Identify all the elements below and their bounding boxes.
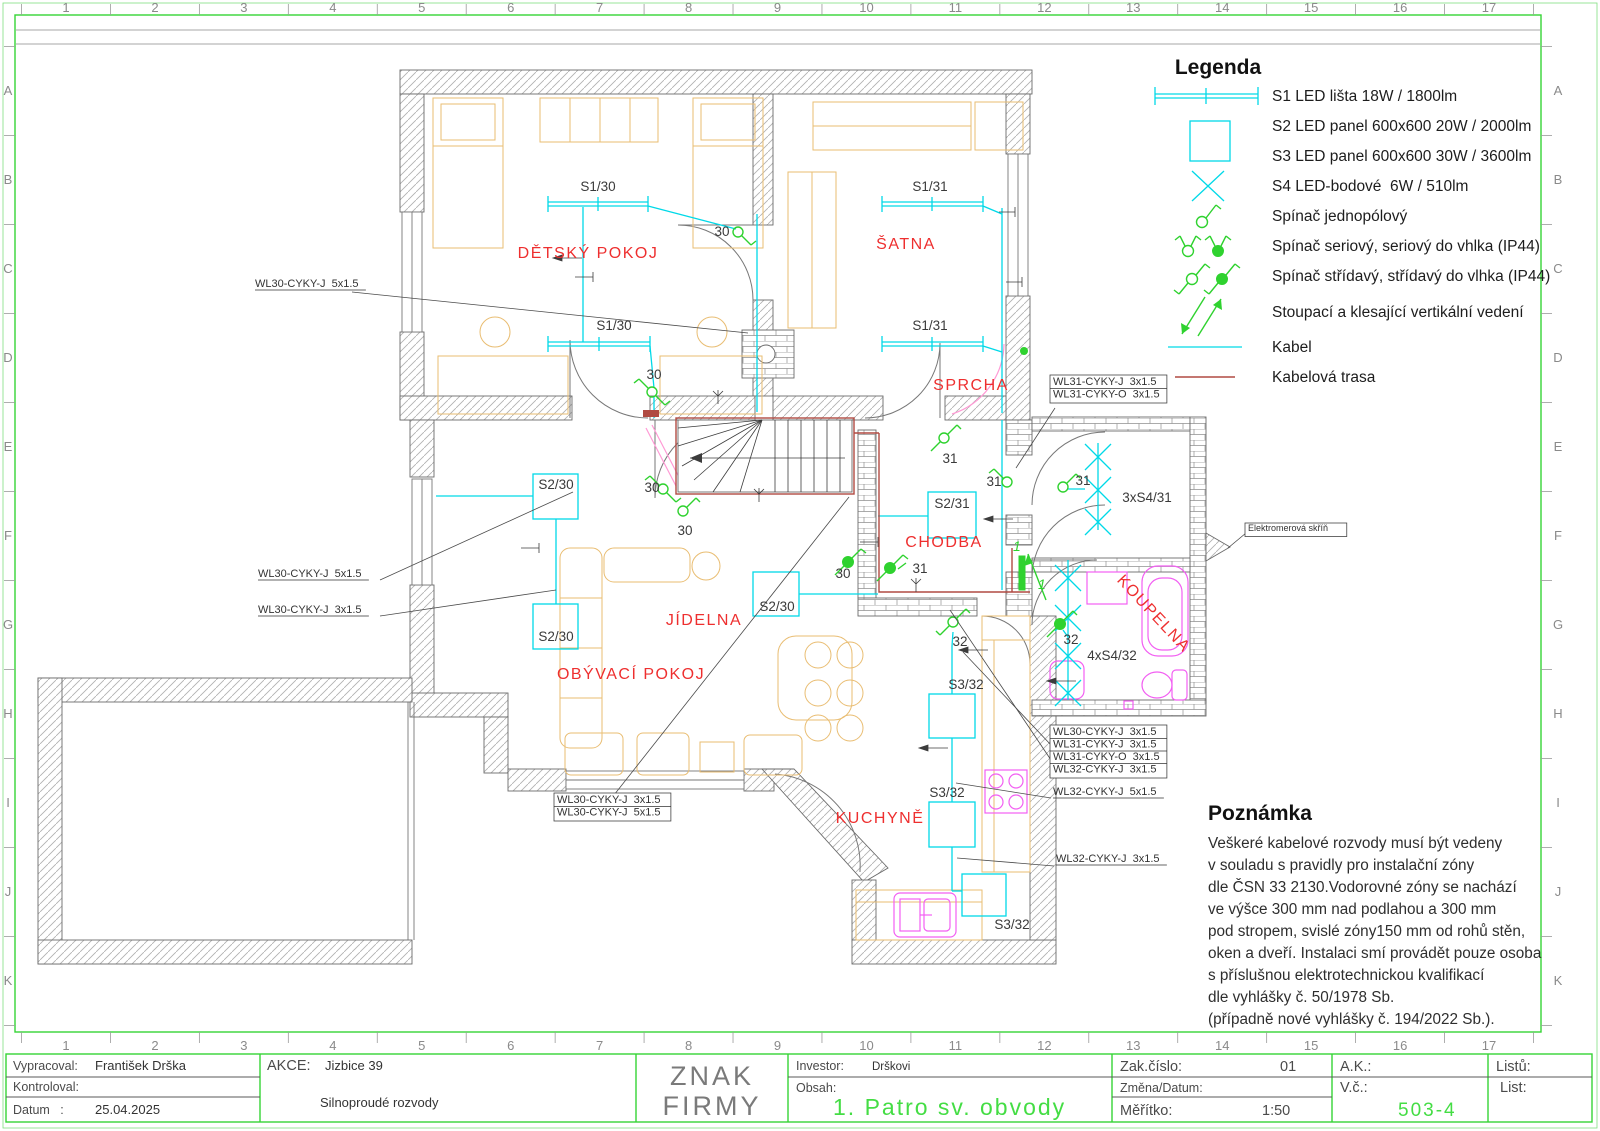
- grid-column-label: 16: [1393, 0, 1407, 15]
- grid-row-label: G: [3, 617, 13, 632]
- drawing-subtitle: Silnoproudé rozvody: [320, 1095, 439, 1110]
- led-strip-s1-30b: [548, 336, 650, 352]
- note-line: pod stropem, svislé zóny150 mm od rohů s…: [1208, 923, 1525, 940]
- grid-column-label: 3: [240, 0, 247, 15]
- grid-row-label: F: [4, 528, 12, 543]
- switch-number-label: 32: [1063, 632, 1078, 647]
- investor-value: Drškovi: [872, 1061, 910, 1073]
- legend-item-label: S4 LED-bodové 6W / 510lm: [1272, 178, 1468, 195]
- grid-row-label: E: [4, 439, 13, 454]
- grid-column-label: 9: [774, 1038, 781, 1053]
- meter-niche: [1206, 533, 1230, 561]
- circuit-label: S1/31: [912, 318, 947, 333]
- akce-value: Jizbice 39: [325, 1058, 383, 1073]
- zak-cislo-value: 01: [1280, 1059, 1296, 1075]
- switch-number-label: 32: [952, 634, 967, 649]
- akce-label: AKCE:: [267, 1058, 311, 1074]
- legend-item-label: S1 LED lišta 18W / 1800lm: [1272, 88, 1457, 105]
- switch-number-label: 31: [986, 474, 1001, 489]
- switch-31-hall-series-ip44: [877, 555, 908, 581]
- room-label: KUCHYNĚ: [836, 808, 925, 827]
- meritko-label: Měřítko:: [1120, 1103, 1172, 1119]
- legend-item-label: Kabelová trasa: [1272, 369, 1376, 386]
- grid-column-label: 15: [1304, 1038, 1318, 1053]
- led-panel-s3-32a: [929, 694, 975, 738]
- switch-number-label: 31: [1075, 473, 1090, 488]
- zak-cislo-label: Zak.číslo:: [1120, 1059, 1182, 1075]
- switch-30-dining-b: [678, 498, 700, 516]
- vypracoval-value: František Drška: [95, 1058, 187, 1073]
- grid-row-label: B: [1554, 172, 1563, 187]
- circuit-label: 3xS4/31: [1122, 490, 1172, 505]
- led-panel-s3-32c: [962, 874, 1006, 916]
- grid-row-label: F: [1554, 528, 1562, 543]
- cable-label: WL32-CYKY-J 3x1.5: [1056, 853, 1160, 865]
- vertical-riser-icon: [1181, 297, 1222, 336]
- grid-column-label: 5: [418, 0, 425, 15]
- grid-column-label: 6: [507, 0, 514, 15]
- legend-item-label: Stoupací a klesající vertikální vedení: [1272, 304, 1524, 321]
- grid-row-label: H: [1553, 706, 1562, 721]
- note-line: s příslušnou elektrotechnickou kvalifika…: [1208, 967, 1485, 984]
- obsah-label: Obsah:: [796, 1081, 836, 1095]
- grid-row-label: C: [3, 261, 12, 276]
- grid-column-label: 2: [151, 0, 158, 15]
- cable-label: WL30-CYKY-J 5x1.5: [255, 278, 359, 290]
- kontroloval-label: Kontroloval:: [13, 1080, 79, 1094]
- drawing-sheet: 1122334455667788991010111112121313141415…: [0, 0, 1600, 1131]
- furniture-layer: [433, 98, 1030, 940]
- note-line: Veškeré kabelové rozvody musí být vedeny: [1208, 835, 1503, 852]
- grid-column-label: 11: [949, 0, 963, 15]
- legend-item-label: S3 LED panel 600x600 30W / 3600lm: [1272, 148, 1531, 165]
- grid-column-label: 10: [859, 0, 873, 15]
- vc-label: V.č.:: [1340, 1080, 1368, 1096]
- switch-single-pole-icon: [1197, 205, 1222, 228]
- grid-row-label: E: [1554, 439, 1563, 454]
- kitchen-sink: [894, 893, 956, 937]
- datum-label: Datum :: [13, 1103, 64, 1117]
- legend-item-label: Spínač střídavý, střídavý do vlhka (IP44…: [1272, 268, 1550, 285]
- vc-value: 503-4: [1398, 1100, 1457, 1121]
- grid-row-label: K: [4, 973, 13, 988]
- grid-column-label: 7: [596, 1038, 603, 1053]
- note-line: ve výšce 300 mm nad podlahou a 300 mm: [1208, 901, 1496, 918]
- floor-plan-svg: 1122334455667788991010111112121313141415…: [0, 0, 1600, 1131]
- staircase: [676, 418, 854, 494]
- cable-label: WL32-CYKY-J 5x1.5: [1053, 786, 1157, 798]
- switch-number-label: 30: [646, 367, 661, 382]
- zmena-datum-label: Změna/Datum:: [1120, 1081, 1203, 1095]
- legend-title: Legenda: [1175, 56, 1262, 79]
- grid-row-label: D: [1553, 350, 1562, 365]
- grid-column-label: 4: [329, 1038, 336, 1053]
- grid-row-label: A: [4, 83, 13, 98]
- grid-column-label: 9: [774, 0, 781, 15]
- circuit-label: S2/30: [759, 599, 794, 614]
- listu-label: Listů:: [1496, 1059, 1531, 1075]
- legend-item-label: Kabel: [1272, 339, 1312, 356]
- grid-column-label: 13: [1126, 1038, 1140, 1053]
- grid-column-label: 5: [418, 1038, 425, 1053]
- cable-label: WL31-CYKY-O 3x1.5: [1053, 389, 1160, 401]
- grid-column-label: 14: [1215, 1038, 1229, 1053]
- led-strip-icon: [1155, 87, 1258, 105]
- led-strip-s1-31b: [882, 336, 983, 352]
- grid-column-label: 7: [596, 0, 603, 15]
- cable-label: WL32-CYKY-J 3x1.5: [1053, 764, 1157, 776]
- led-strip-s1-31a: [882, 196, 983, 212]
- led-panel-icon: [1190, 121, 1230, 161]
- ak-label: A.K.:: [1340, 1059, 1371, 1075]
- circuit-label: S3/32: [994, 917, 1029, 932]
- cable-label: Elektromerová skříň: [1248, 523, 1328, 533]
- grid-column-label: 10: [859, 1038, 873, 1053]
- switch-number-label: 30: [714, 224, 729, 239]
- grid-row-label: D: [3, 350, 12, 365]
- switch-number-label: 31: [912, 561, 927, 576]
- grid-row-label: G: [1553, 617, 1563, 632]
- note-line: dle vyhlášky č. 50/1978 Sb.: [1208, 989, 1394, 1006]
- company-logo-line1: ZNAK: [670, 1061, 754, 1091]
- grid-column-label: 1: [62, 1038, 69, 1053]
- circuit-label: S1/30: [596, 318, 631, 333]
- vypracoval-label: Vypracoval:: [13, 1059, 78, 1073]
- datum-value: 25.04.2025: [95, 1102, 160, 1117]
- led-spot-icon: [1192, 171, 1224, 201]
- grid-row-label: H: [3, 706, 12, 721]
- circuit-label: S3/32: [948, 677, 983, 692]
- circuit-label: S1/31: [912, 179, 947, 194]
- grid-column-label: 12: [1037, 1038, 1051, 1053]
- company-logo-line2: FIRMY: [663, 1091, 762, 1121]
- room-label: ŠATNA: [876, 234, 936, 253]
- circuit-label: S3/32: [929, 785, 964, 800]
- room-label: DĚTSKÝ POKOJ: [518, 243, 659, 262]
- chimney: [742, 330, 794, 378]
- cable-label: WL30-CYKY-J 3x1.5: [1053, 726, 1157, 738]
- cable-label: WL30-CYKY-J 5x1.5: [258, 568, 362, 580]
- circuit-label: S2/30: [538, 629, 573, 644]
- cable-label: WL31-CYKY-J 3x1.5: [1053, 739, 1157, 751]
- grid-row-label: J: [1555, 884, 1562, 899]
- circuit-label: S2/30: [538, 477, 573, 492]
- grid-column-label: 8: [685, 0, 692, 15]
- legend-item-label: Spínač jednopólový: [1272, 208, 1408, 225]
- toilet: [1142, 672, 1172, 698]
- list-label: List:: [1500, 1080, 1527, 1096]
- grid-column-label: 3: [240, 1038, 247, 1053]
- grid-column-label: 13: [1126, 0, 1140, 15]
- circuit-label: S2/31: [934, 496, 969, 511]
- cable-label: WL31-CYKY-O 3x1.5: [1053, 751, 1160, 763]
- grid-row-label: A: [1554, 83, 1563, 98]
- switch-31-hall-top: [931, 425, 961, 451]
- grid-row-label: C: [1553, 261, 1562, 276]
- meritko-value: 1:50: [1262, 1103, 1290, 1119]
- note-title: Poznámka: [1208, 802, 1312, 825]
- cable-label: WL31-CYKY-J 3x1.5: [1053, 376, 1157, 388]
- circuit-label: 4xS4/32: [1087, 648, 1137, 663]
- room-label: JÍDELNA: [666, 610, 742, 629]
- legend: Legenda S1 LED lišta 18W / 1800lm S2 LED…: [1155, 56, 1550, 386]
- walls-layer: [38, 70, 1230, 964]
- title-block: Vypracoval: František Drška Kontroloval:…: [6, 1054, 1592, 1122]
- cable-label: WL30-CYKY-J 3x1.5: [557, 794, 661, 806]
- note-line: (případně nové vyhlášky č. 194/2022 Sb.)…: [1208, 1011, 1495, 1028]
- room-label: OBÝVACÍ POKOJ: [557, 664, 705, 683]
- grid-row-label: I: [6, 795, 10, 810]
- grid-row-label: J: [5, 884, 12, 899]
- grid-column-label: 1: [62, 0, 69, 15]
- circuit-label: S1/30: [580, 179, 615, 194]
- switch-two-way-icon: [1174, 264, 1240, 294]
- grid-column-label: 4: [329, 0, 336, 15]
- switch-series-icon: [1175, 236, 1231, 257]
- switch-number-label: 30: [835, 566, 850, 581]
- grid-column-label: 17: [1482, 1038, 1496, 1053]
- switch-number-label: 30: [677, 523, 692, 538]
- switch-number-label: 30: [644, 480, 659, 495]
- room-label: CHODBA: [905, 534, 982, 551]
- led-panel-s3-32b: [929, 802, 975, 847]
- investor-label: Investor:: [796, 1059, 844, 1073]
- grid-column-label: 2: [151, 1038, 158, 1053]
- legend-item-label: Spínač seriový, seriový do vhlka (IP44): [1272, 238, 1540, 255]
- obsah-value: 1. Patro sv. obvody: [833, 1094, 1066, 1120]
- room-label: KOUPELNA: [1113, 572, 1193, 656]
- riser-number-label: 1: [1013, 538, 1021, 554]
- grid-row-label: K: [1554, 973, 1563, 988]
- switch-number-label: 31: [942, 451, 957, 466]
- grid-column-label: 15: [1304, 0, 1318, 15]
- switch-30-children-room: [733, 227, 756, 245]
- led-strip-s1-30a: [548, 196, 648, 212]
- grid-row-label: I: [1556, 795, 1560, 810]
- grid-column-label: 17: [1482, 0, 1496, 15]
- note-line: v souladu s pravidly pro instalační zóny: [1208, 857, 1474, 874]
- grid-column-label: 11: [949, 1038, 963, 1053]
- grid-column-label: 16: [1393, 1038, 1407, 1053]
- cable-label: WL30-CYKY-J 5x1.5: [557, 807, 661, 819]
- grid-column-label: 14: [1215, 0, 1229, 15]
- note-line: dle ČSN 33 2130.Vodorovné zóny se nacház…: [1208, 879, 1517, 896]
- legend-item-label: S2 LED panel 600x600 20W / 2000lm: [1272, 118, 1531, 135]
- junction-dot: [1021, 348, 1028, 355]
- note-block: Poznámka Veškeré kabelové rozvody musí b…: [1208, 802, 1542, 1028]
- grid-row-label: B: [4, 172, 13, 187]
- grid-column-label: 6: [507, 1038, 514, 1053]
- riser-number-label: 1: [1038, 576, 1046, 592]
- stove: [985, 770, 1027, 813]
- grid-column-label: 8: [685, 1038, 692, 1053]
- note-line: oken a dveří. Instalaci smí provádět pou…: [1208, 945, 1542, 962]
- room-label: SPRCHA: [933, 377, 1009, 394]
- cable-label: WL30-CYKY-J 3x1.5: [258, 604, 362, 616]
- grid-column-label: 12: [1037, 0, 1051, 15]
